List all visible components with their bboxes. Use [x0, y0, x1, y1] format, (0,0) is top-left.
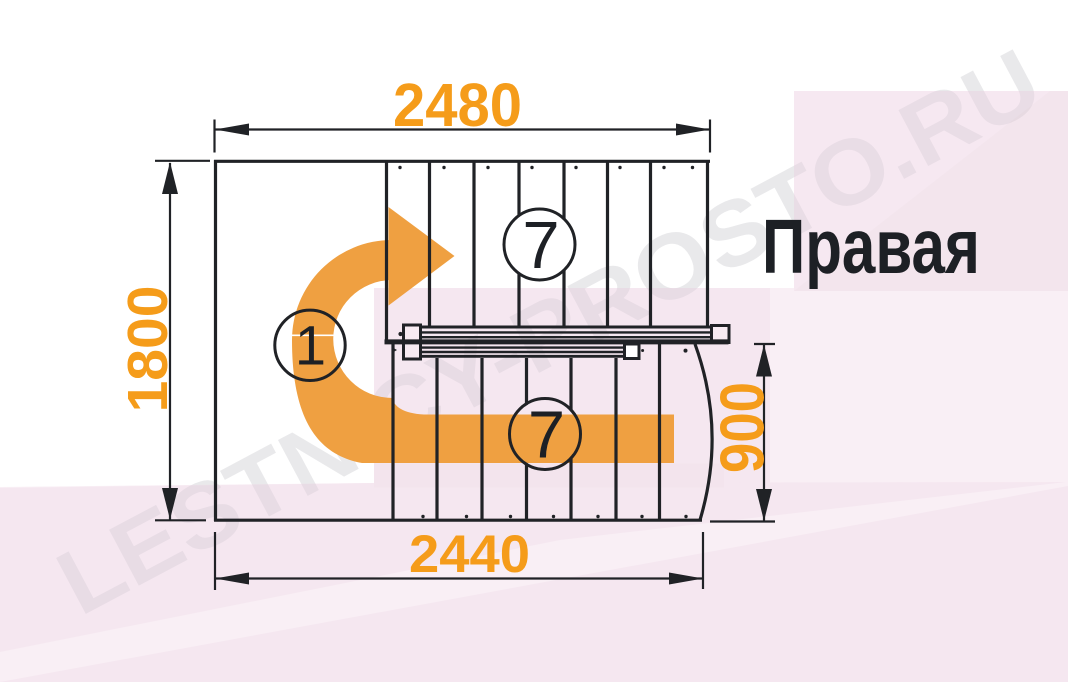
svg-text:900: 900: [709, 382, 778, 473]
svg-text:1800: 1800: [116, 286, 180, 413]
svg-text:7: 7: [522, 208, 559, 283]
svg-text:2480: 2480: [393, 71, 522, 139]
svg-text:1: 1: [295, 314, 326, 377]
svg-text:7: 7: [528, 398, 565, 473]
svg-text:2440: 2440: [409, 525, 530, 584]
svg-text:Правая: Правая: [762, 204, 980, 290]
